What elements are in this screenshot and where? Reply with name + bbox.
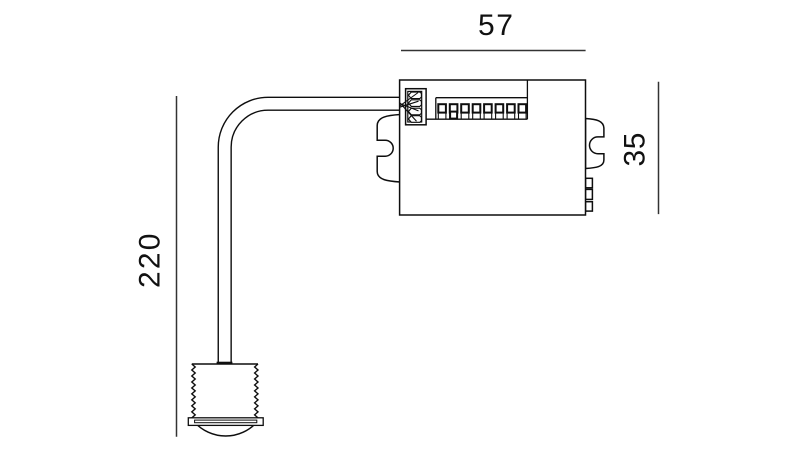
svg-text:220: 220 (134, 231, 167, 288)
svg-text:35: 35 (619, 132, 652, 166)
svg-text:57: 57 (478, 9, 515, 42)
